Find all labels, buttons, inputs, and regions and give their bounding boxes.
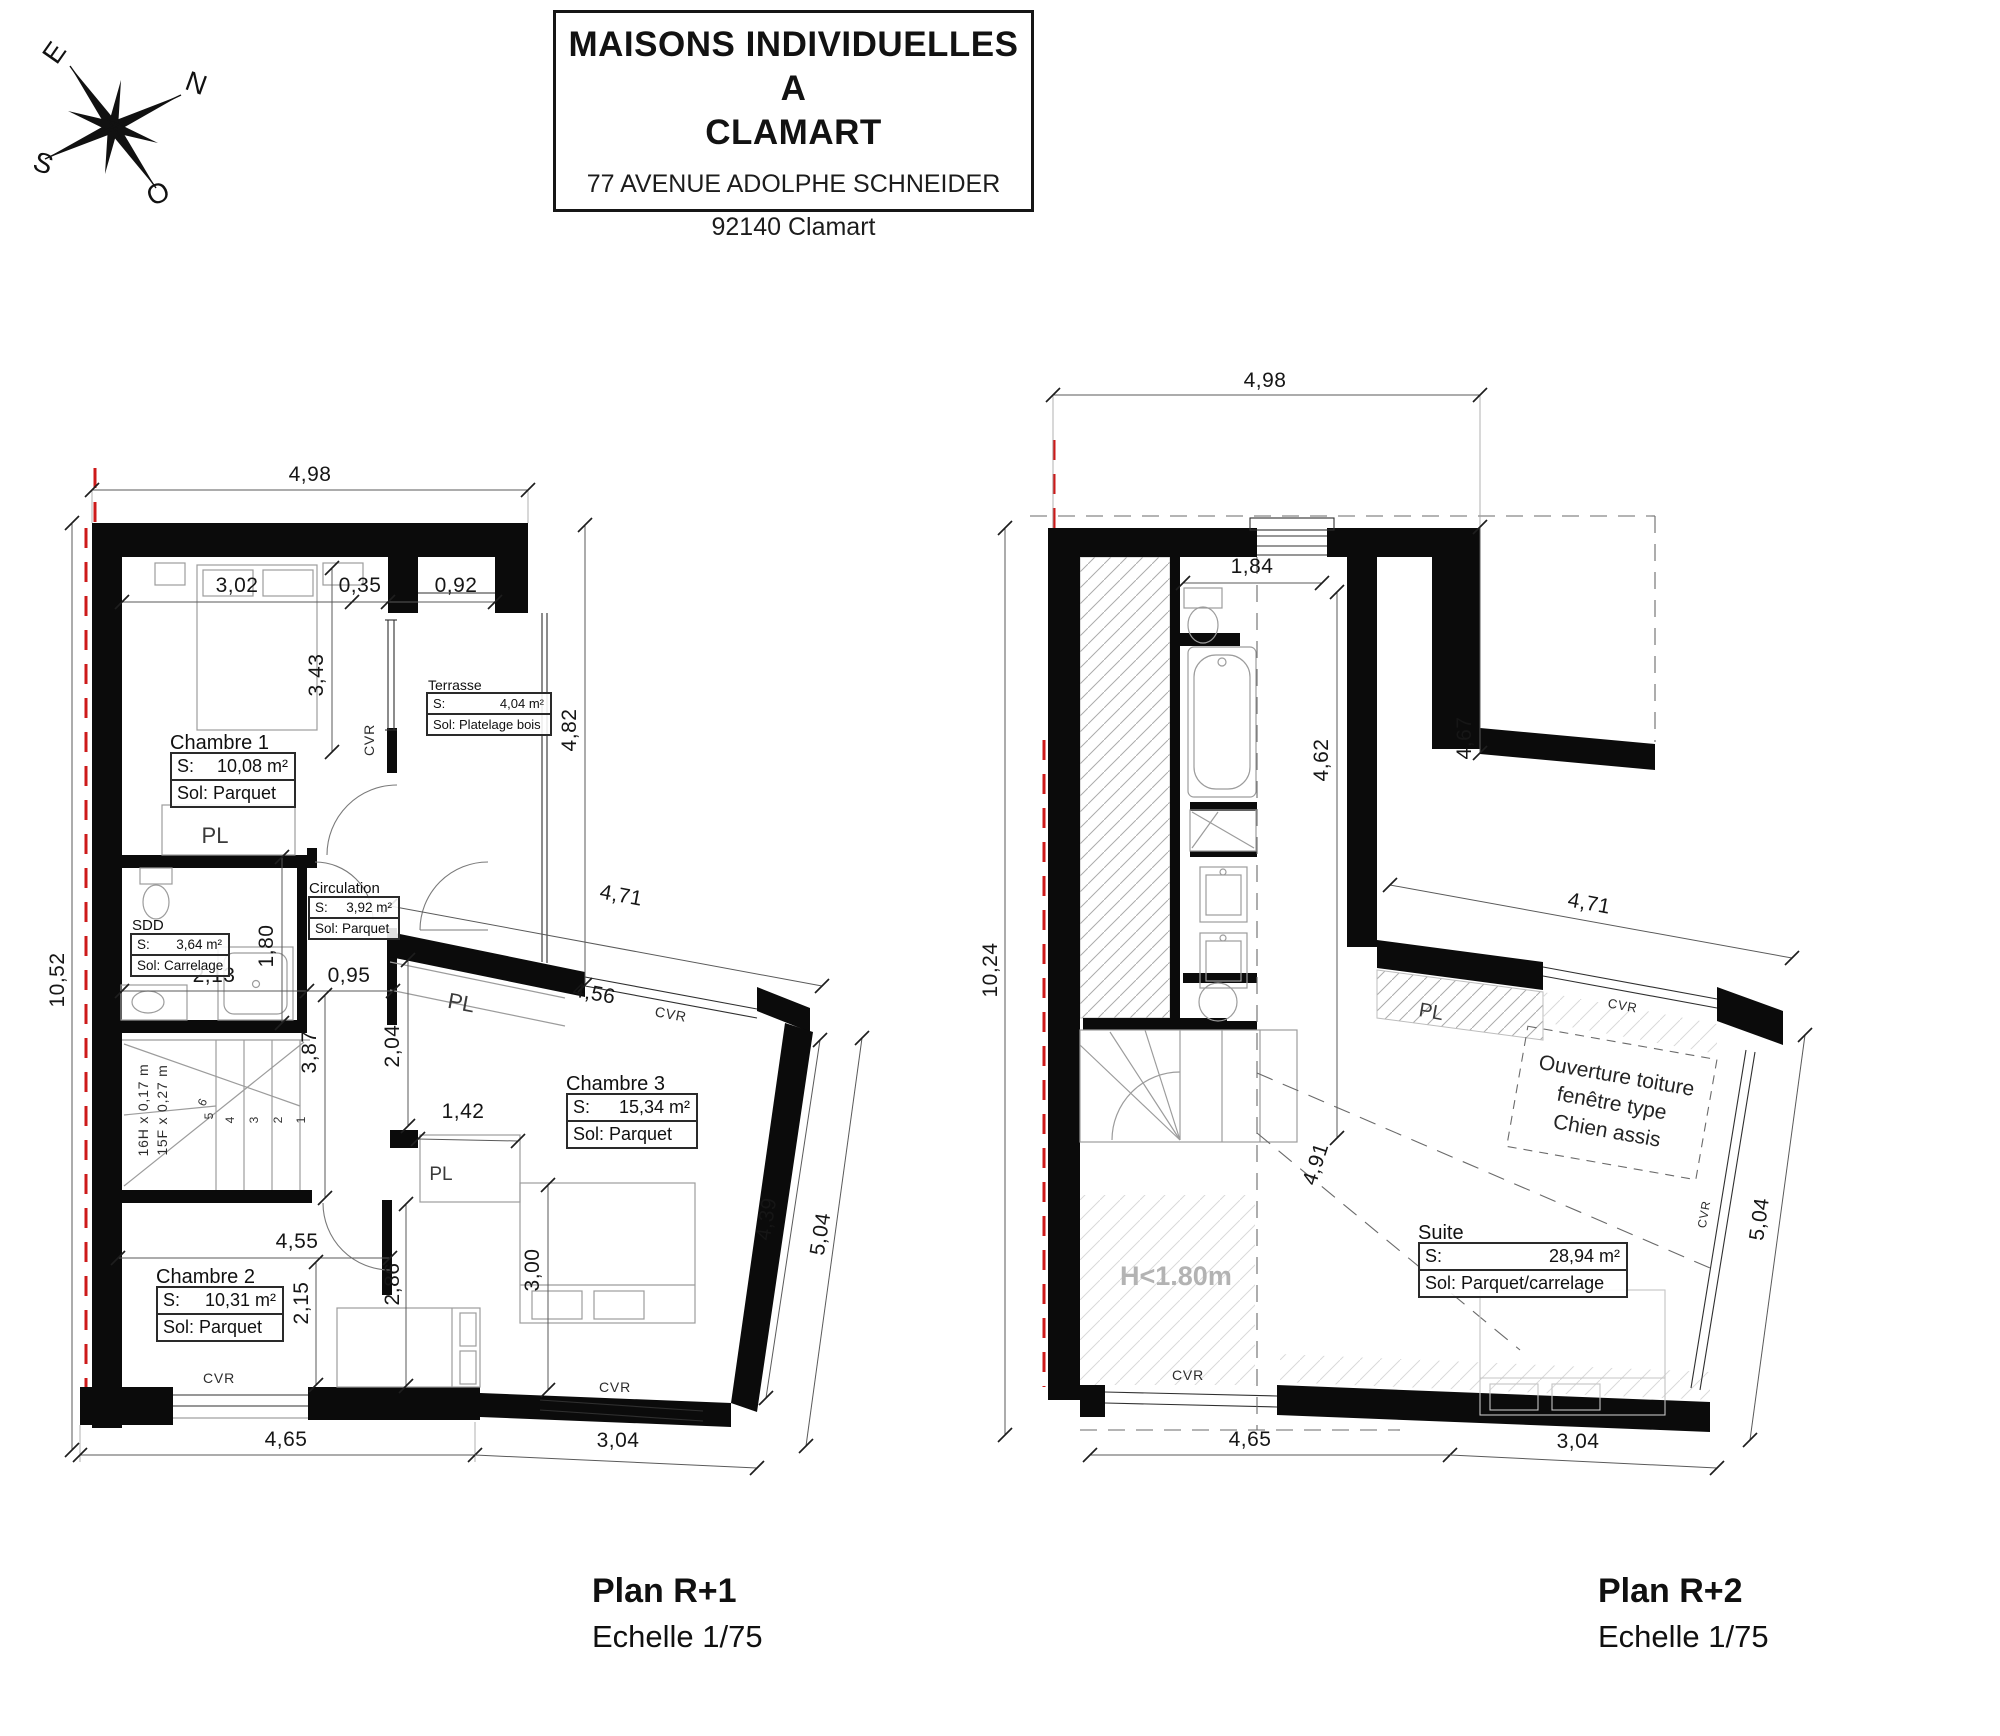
wc-bowl	[1199, 983, 1237, 1021]
floor-value: Sol: Platelage bois	[428, 715, 550, 734]
stair-step-2: 2	[271, 1116, 285, 1123]
dim-471: 4,71	[598, 880, 644, 910]
room-name-sdd: SDD	[132, 917, 164, 934]
toilet	[1184, 588, 1222, 608]
dim-092: 0,92	[435, 574, 478, 597]
floor-value: Sol: Parquet	[172, 781, 294, 806]
sink-sdd	[121, 985, 187, 1020]
plan-r2-stairs	[1080, 1030, 1297, 1142]
project-address: 77 AVENUE ADOLPHE SCHNEIDER	[587, 170, 1001, 199]
dim-300: 3,00	[521, 1249, 544, 1292]
floor-value: Sol: Parquet	[158, 1315, 282, 1340]
stair-step-5: 5	[202, 1112, 216, 1119]
dim-180: 1,80	[255, 925, 278, 968]
project-city: 92140 Clamart	[712, 213, 876, 242]
dim-302: 3,02	[216, 574, 259, 597]
floor-value: Sol: Parquet/carrelage	[1420, 1271, 1626, 1296]
surface-label: S:	[573, 1097, 590, 1118]
dim-387: 3,87	[298, 1031, 321, 1074]
caption-r2: Plan R+2 Echelle 1/75	[1598, 1572, 1769, 1655]
low-height-note: H<1.80m	[1120, 1261, 1232, 1291]
dim-215: 2,15	[290, 1282, 313, 1325]
dim-184: 1,84	[1231, 555, 1274, 578]
dim-482: 4,82	[558, 709, 581, 752]
compass-star	[45, 66, 181, 188]
room-box-sdd: S:3,64 m² Sol: Carrelage	[130, 933, 230, 977]
compass-rose: E N S O	[28, 22, 218, 227]
dim-top: 4,98	[289, 463, 332, 486]
room-box-terrasse: S:4,04 m² Sol: Platelage bois	[426, 692, 552, 736]
project-title-line2: CLAMART	[705, 113, 882, 152]
surface-value: 10,08 m²	[217, 756, 288, 777]
surface-label: S:	[315, 900, 328, 915]
bed-chambre3	[520, 1183, 695, 1323]
project-title-line1: MAISONS INDIVIDUELLES A	[569, 25, 1019, 108]
room-box-chambre1: S:10,08 m² Sol: Parquet	[170, 752, 296, 808]
window-label-cvr1: CVR	[361, 724, 377, 756]
closet-label-pl1: PL	[202, 823, 229, 848]
room-box-chambre2: S:10,31 m² Sol: Parquet	[156, 1286, 284, 1342]
compass-south-label: S	[29, 145, 57, 181]
surface-label: S:	[1425, 1246, 1442, 1267]
dim-204: 2,04	[381, 1025, 404, 1068]
stair-step-4: 4	[223, 1116, 237, 1123]
dormer-annotation: Ouverture toiture fenêtre type Chien ass…	[1507, 1026, 1717, 1179]
dim-left: 10,24	[979, 942, 1002, 997]
room-box-circulation: S:3,92 m² Sol: Parquet	[308, 896, 400, 940]
dim-462: 4,62	[1310, 739, 1333, 782]
dim-491: 4,91	[1298, 1140, 1333, 1188]
dim-343: 3,43	[305, 654, 328, 697]
caption-r2-scale: Echelle 1/75	[1598, 1619, 1769, 1655]
compass-west-label: O	[142, 175, 175, 212]
surface-label: S:	[177, 756, 194, 777]
closet-label-pl: PL	[1417, 999, 1445, 1025]
floor-value: Sol: Carrelage	[132, 956, 228, 975]
dim-467: 4,67	[1453, 717, 1476, 760]
surface-label: S:	[137, 937, 150, 952]
dim-456: 4,56	[571, 978, 617, 1008]
closet-label-pl2: PL	[446, 988, 477, 1017]
caption-r1-title: Plan R+1	[592, 1572, 763, 1611]
surface-value: 28,94 m²	[1549, 1246, 1620, 1267]
plan-r2-drawing: Ouverture toiture fenêtre type Chien ass…	[960, 340, 1860, 1525]
window-label-cvr-bottom: CVR	[1172, 1367, 1204, 1383]
bathtub	[1188, 647, 1256, 797]
bed-chambre2	[337, 1308, 480, 1387]
dim-455: 4,55	[276, 1230, 319, 1253]
surface-value: 4,04 m²	[500, 696, 544, 711]
dim-471: 4,71	[1566, 888, 1612, 918]
project-title: MAISONS INDIVIDUELLES A CLAMART	[556, 23, 1031, 154]
caption-r1: Plan R+1 Echelle 1/75	[592, 1572, 763, 1655]
surface-value: 15,34 m²	[619, 1097, 690, 1118]
compass-north-label: N	[181, 65, 211, 101]
room-box-chambre3: S:15,34 m² Sol: Parquet	[566, 1093, 698, 1149]
stairs-note-line1: 16H x 0,17 m	[135, 1064, 151, 1157]
dim-504: 5,04	[1745, 1196, 1774, 1242]
title-block: MAISONS INDIVIDUELLES A CLAMART 77 AVENU…	[553, 10, 1034, 212]
dim-304: 3,04	[597, 1429, 640, 1452]
window-label-cvr2: CVR	[203, 1370, 235, 1386]
stair-step-3: 3	[247, 1116, 261, 1123]
room-box-suite: S:28,94 m² Sol: Parquet/carrelage	[1418, 1242, 1628, 1298]
dim-504: 5,04	[806, 1211, 835, 1257]
surface-value: 10,31 m²	[205, 1290, 276, 1311]
dim-286: 2,86	[381, 1263, 404, 1306]
surface-value: 3,64 m²	[176, 937, 222, 952]
room-name-circulation: Circulation	[309, 880, 380, 897]
floor-value: Sol: Parquet	[310, 919, 398, 938]
floor-value: Sol: Parquet	[568, 1122, 696, 1147]
closet-pl1	[162, 805, 295, 855]
surface-value: 3,92 m²	[346, 900, 392, 915]
surface-label: S:	[433, 696, 445, 711]
plan-r1: 4,98 10,52 3,02 0,35 0,92 3,43 4,82 1,80…	[20, 340, 900, 1525]
dim-left: 10,52	[46, 952, 69, 1007]
caption-r1-scale: Echelle 1/75	[592, 1619, 763, 1655]
toilet-sdd	[140, 868, 172, 884]
caption-r2-title: Plan R+2	[1598, 1572, 1769, 1611]
stair-step-6: 6	[195, 1096, 211, 1108]
stairs-note-line2: 15F x 0,27 m	[154, 1064, 170, 1155]
surface-label: S:	[163, 1290, 180, 1311]
dim-top: 4,98	[1244, 369, 1287, 392]
closet-label-pl3: PL	[429, 1164, 452, 1185]
dim-304: 3,04	[1557, 1430, 1600, 1453]
window-label-cvr4: CVR	[599, 1379, 631, 1395]
dim-465: 4,65	[1229, 1428, 1272, 1451]
dim-035: 0,35	[339, 574, 382, 597]
stair-step-1: 1	[294, 1116, 308, 1123]
dim-465: 4,65	[265, 1428, 308, 1451]
window-label-cvr-right: CVR	[1695, 1199, 1714, 1229]
room-name-terrasse: Terrasse	[428, 677, 482, 693]
architectural-drawing-sheet: E N S O MAISONS INDIVIDUELLES A CLAMART …	[0, 0, 2000, 1736]
plan-r2: Ouverture toiture fenêtre type Chien ass…	[960, 340, 1860, 1525]
window-label-cvr3: CVR	[654, 1003, 688, 1025]
dim-142: 1,42	[442, 1100, 485, 1123]
compass-east-label: E	[36, 36, 72, 69]
dim-095: 0,95	[328, 964, 371, 987]
